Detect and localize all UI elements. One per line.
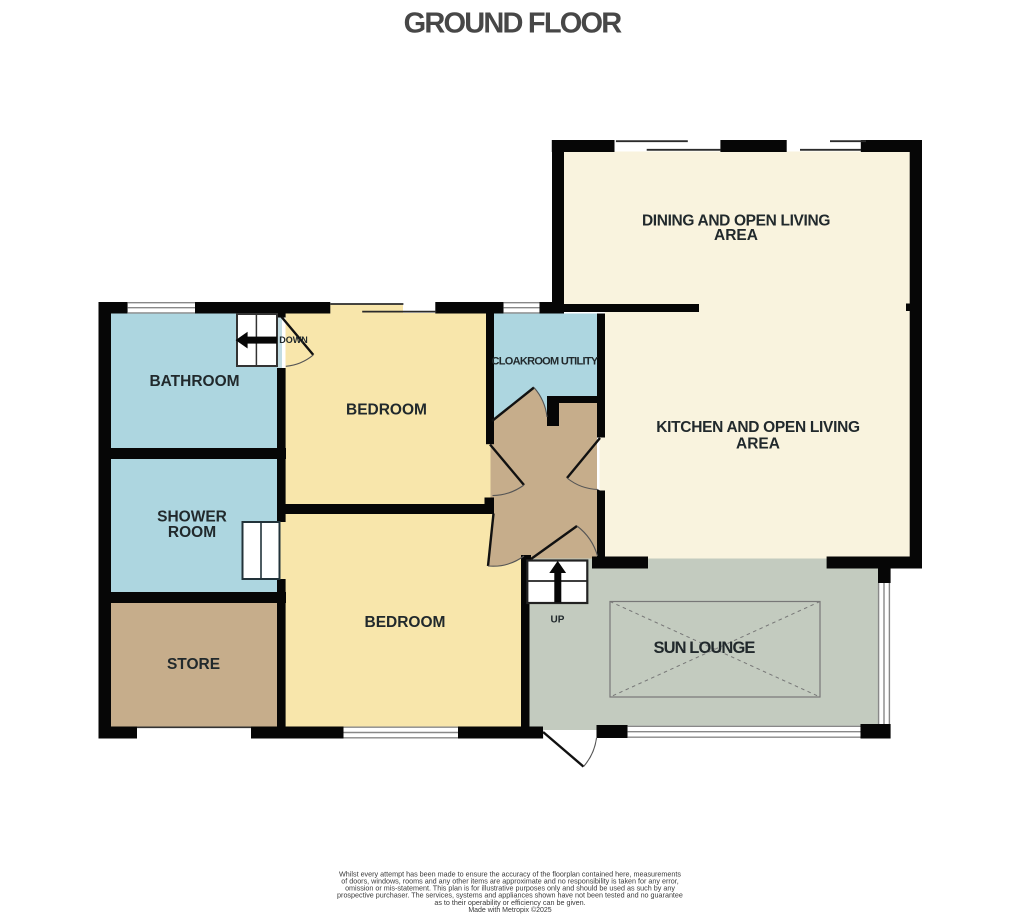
svg-text:CLOAKROOM UTILITY: CLOAKROOM UTILITY — [491, 356, 598, 368]
svg-text:BEDROOM: BEDROOM — [365, 614, 446, 631]
svg-text:AREA: AREA — [736, 435, 780, 452]
svg-text:BEDROOM: BEDROOM — [346, 402, 427, 419]
svg-text:UP: UP — [551, 615, 565, 626]
svg-text:SHOWER: SHOWER — [157, 508, 227, 525]
svg-text:ROOM: ROOM — [168, 524, 216, 541]
svg-text:AREA: AREA — [714, 227, 758, 244]
svg-text:SUN LOUNGE: SUN LOUNGE — [653, 639, 755, 657]
svg-text:DOWN: DOWN — [279, 335, 308, 345]
svg-text:KITCHEN AND OPEN LIVING: KITCHEN AND OPEN LIVING — [656, 419, 860, 436]
svg-text:BATHROOM: BATHROOM — [149, 373, 239, 390]
svg-text:GROUND FLOOR: GROUND FLOOR — [404, 7, 623, 39]
svg-text:STORE: STORE — [167, 656, 220, 673]
svg-text:Made with Metropix ©2025: Made with Metropix ©2025 — [468, 906, 551, 914]
svg-text:as to their operability or eff: as to their operability or efficiency ca… — [434, 898, 585, 907]
